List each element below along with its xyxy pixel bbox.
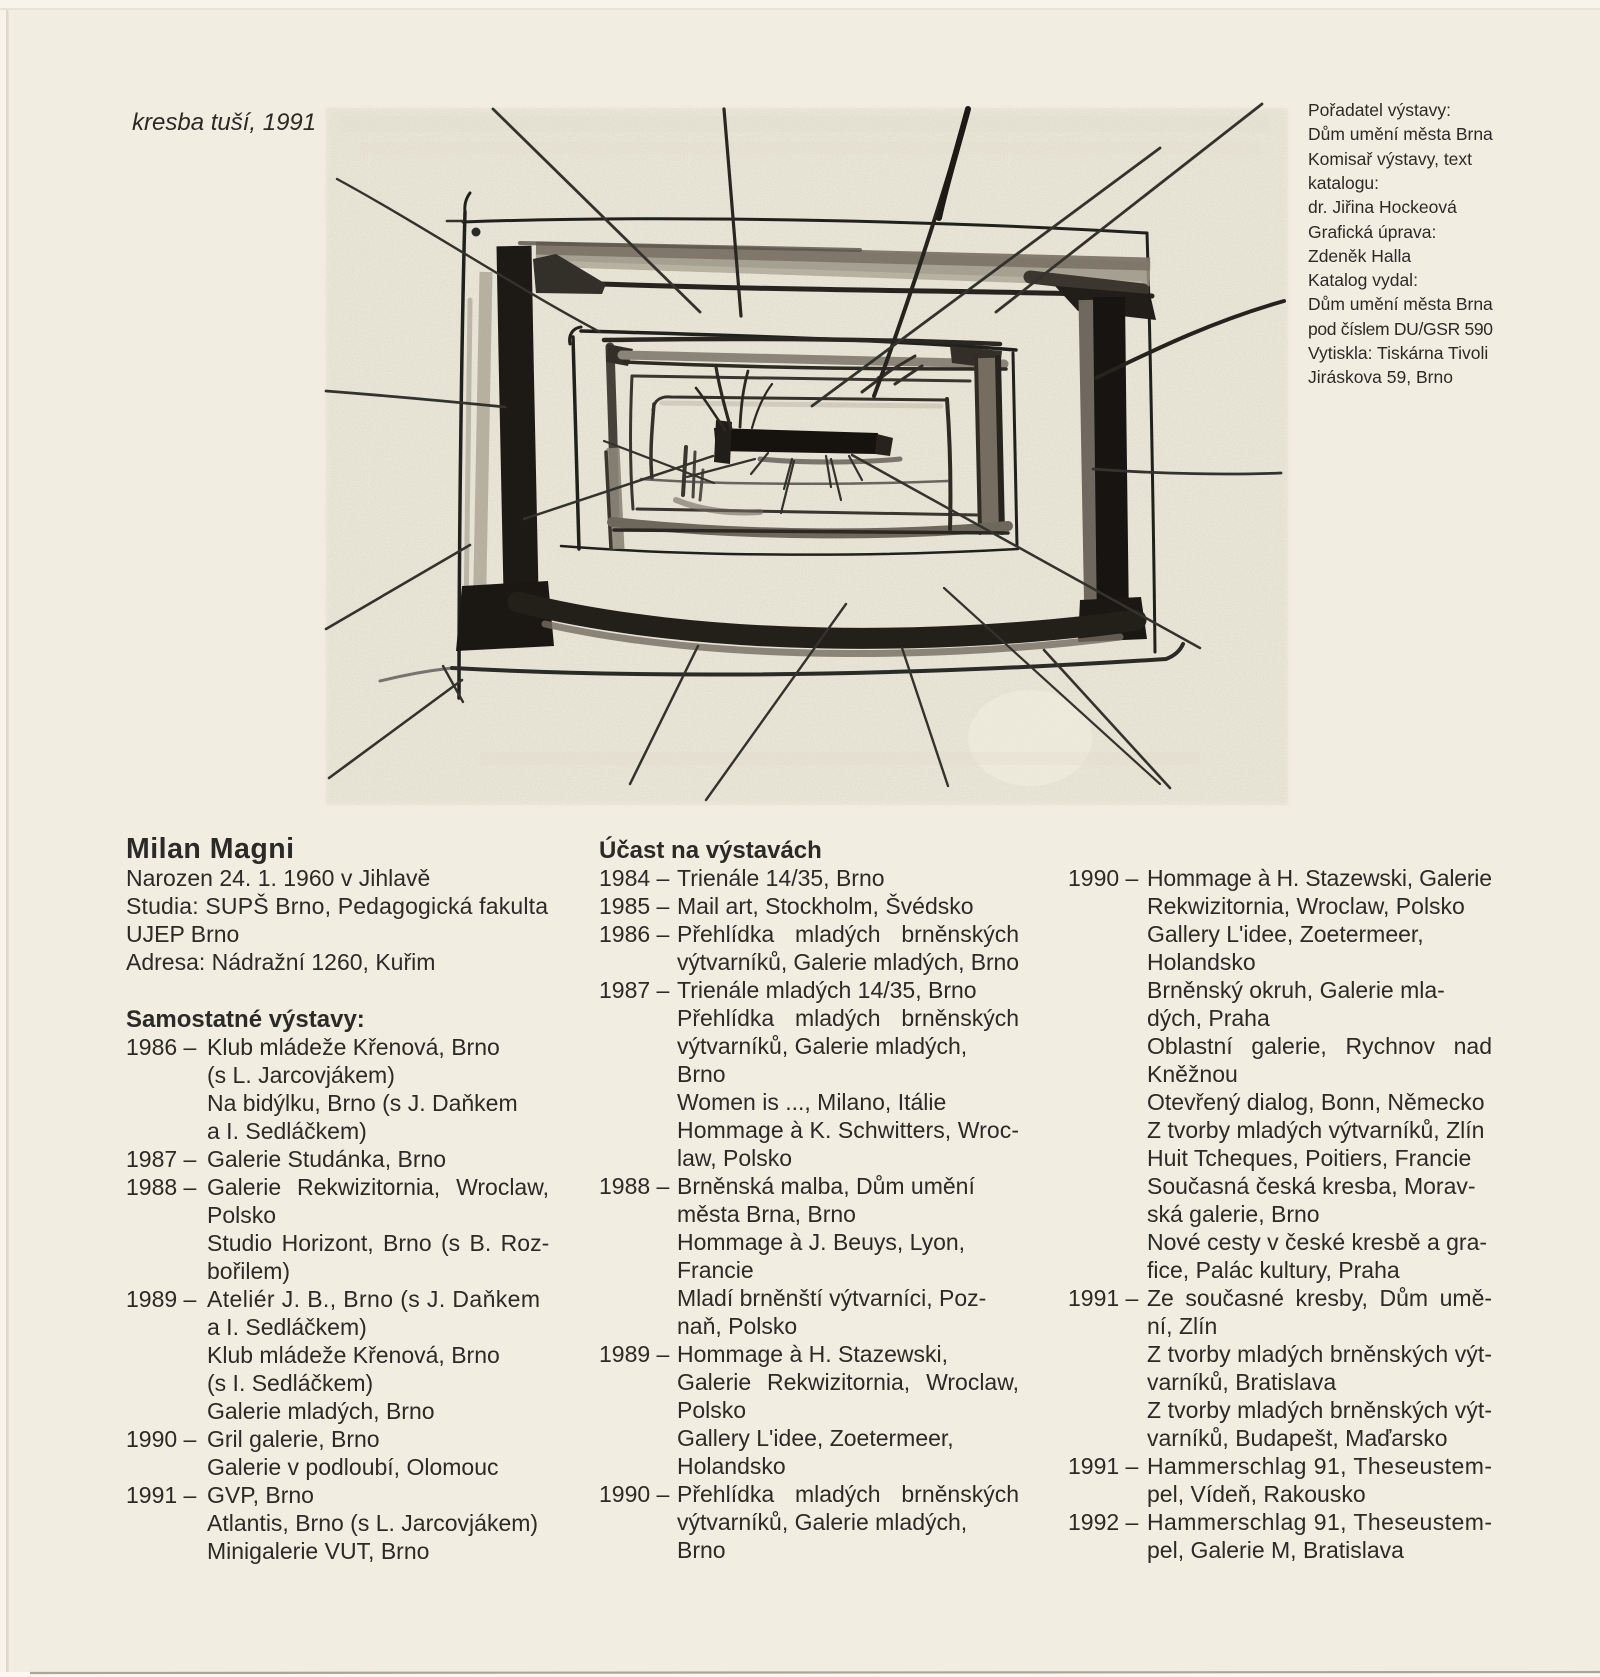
svg-text:Rekwizitornia, Wroclaw, Polsko: Rekwizitornia, Wroclaw, Polsko — [1147, 893, 1465, 919]
svg-text:Galerie Rekwizitornia, Wroclaw: Galerie Rekwizitornia, Wroclaw, — [207, 1174, 549, 1200]
svg-text:Galerie Rekwizitornia, Wroclaw: Galerie Rekwizitornia, Wroclaw, — [677, 1369, 1019, 1395]
svg-text:Současná česká kresba, Morav-: Současná česká kresba, Morav- — [1147, 1173, 1476, 1199]
svg-text:Gallery L'idee, Zoetermeer,: Gallery L'idee, Zoetermeer, — [1147, 921, 1424, 947]
svg-text:1989 –: 1989 – — [126, 1286, 197, 1312]
svg-text:Otevřený dialog, Bonn, Německo: Otevřený dialog, Bonn, Německo — [1147, 1089, 1485, 1115]
svg-text:Oblastní galerie, Rychnov nad: Oblastní galerie, Rychnov nad — [1147, 1033, 1492, 1059]
svg-text:Mail art, Stockholm, Švédsko: Mail art, Stockholm, Švédsko — [677, 892, 974, 919]
svg-text:Brno: Brno — [677, 1537, 726, 1563]
svg-text:(s I. Sedláčkem): (s I. Sedláčkem) — [207, 1370, 373, 1396]
svg-text:Vytiskla: Tiskárna Tivoli: Vytiskla: Tiskárna Tivoli — [1308, 343, 1488, 363]
svg-text:1990 –: 1990 – — [599, 1481, 670, 1507]
svg-text:1991 –: 1991 – — [1068, 1285, 1139, 1311]
svg-text:Dům umění města Brna: Dům umění města Brna — [1308, 294, 1493, 314]
svg-text:Na bidýlku, Brno (s J. Daňkem: Na bidýlku, Brno (s J. Daňkem — [207, 1090, 518, 1116]
svg-text:Z tvorby mladých brněnských vý: Z tvorby mladých brněnských výt- — [1147, 1341, 1492, 1367]
svg-text:Polsko: Polsko — [207, 1202, 276, 1228]
svg-text:Mladí brněnští výtvarníci, Poz: Mladí brněnští výtvarníci, Poz- — [677, 1285, 986, 1311]
svg-text:Adresa: Nádražní 1260, Kuřim: Adresa: Nádražní 1260, Kuřim — [126, 949, 435, 975]
svg-text:Hammerschlag 91, Theseustem-: Hammerschlag 91, Theseustem- — [1147, 1453, 1492, 1479]
svg-text:1986 –: 1986 – — [599, 921, 670, 947]
svg-text:varníků, Budapešt, Maďarsko: varníků, Budapešt, Maďarsko — [1147, 1425, 1448, 1451]
svg-text:Studia: SUPŠ Brno, Pedagogická: Studia: SUPŠ Brno, Pedagogická fakulta — [126, 892, 548, 919]
svg-text:Jiráskova 59, Brno: Jiráskova 59, Brno — [1308, 367, 1453, 387]
svg-text:Holandsko: Holandsko — [677, 1453, 786, 1479]
svg-text:1987 –: 1987 – — [126, 1146, 197, 1172]
svg-text:Gril galerie, Brno: Gril galerie, Brno — [207, 1426, 380, 1452]
svg-text:kresba tuší, 1991: kresba tuší, 1991 — [132, 109, 316, 136]
svg-text:1990 –: 1990 – — [1068, 865, 1139, 891]
svg-text:Hammerschlag 91, Theseustem-: Hammerschlag 91, Theseustem- — [1147, 1509, 1492, 1535]
svg-text:Přehlídka mladých brněnských: Přehlídka mladých brněnských — [677, 1005, 1019, 1031]
svg-text:varníků, Bratislava: varníků, Bratislava — [1147, 1369, 1336, 1395]
svg-text:GVP, Brno: GVP, Brno — [207, 1482, 314, 1508]
svg-text:Brno: Brno — [677, 1061, 726, 1087]
svg-text:výtvarníků, Galerie mladých, B: výtvarníků, Galerie mladých, Brno — [677, 949, 1019, 975]
svg-text:1988 –: 1988 – — [126, 1174, 197, 1200]
svg-text:Holandsko: Holandsko — [1147, 949, 1256, 975]
svg-text:výtvarníků, Galerie mladých,: výtvarníků, Galerie mladých, — [677, 1509, 967, 1535]
svg-text:Hommage à H. Stazewski, Galeri: Hommage à H. Stazewski, Galerie — [1147, 865, 1492, 891]
svg-text:Milan Magni: Milan Magni — [126, 833, 295, 865]
svg-text:Účast na výstavách: Účast na výstavách — [599, 836, 822, 864]
svg-text:pel, Vídeň, Rakousko: pel, Vídeň, Rakousko — [1147, 1481, 1366, 1507]
svg-text:Ze současné kresby, Dům umě-: Ze současné kresby, Dům umě- — [1147, 1285, 1492, 1311]
svg-text:Zdeněk Halla: Zdeněk Halla — [1308, 246, 1411, 266]
svg-text:Narozen 24. 1. 1960 v Jihlavě: Narozen 24. 1. 1960 v Jihlavě — [126, 865, 430, 891]
svg-text:Hommage à K. Schwitters, Wroc-: Hommage à K. Schwitters, Wroc- — [677, 1117, 1019, 1143]
svg-text:Huit Tcheques, Poitiers, Franc: Huit Tcheques, Poitiers, Francie — [1147, 1145, 1471, 1171]
svg-text:1992 –: 1992 – — [1068, 1509, 1139, 1535]
svg-text:1984 –: 1984 – — [599, 865, 670, 891]
svg-text:Komisař výstavy, text: Komisař výstavy, text — [1308, 149, 1472, 169]
svg-text:Hommage à J. Beuys, Lyon,: Hommage à J. Beuys, Lyon, — [677, 1229, 965, 1255]
svg-text:Klub mládeže Křenová, Brno: Klub mládeže Křenová, Brno — [207, 1342, 500, 1368]
svg-text:Brněnská malba, Dům umění: Brněnská malba, Dům umění — [677, 1173, 975, 1199]
svg-text:Galerie Studánka, Brno: Galerie Studánka, Brno — [207, 1146, 446, 1172]
svg-text:naň, Polsko: naň, Polsko — [677, 1313, 797, 1339]
svg-text:Polsko: Polsko — [677, 1397, 746, 1423]
svg-text:Brněnský okruh, Galerie mla-: Brněnský okruh, Galerie mla- — [1147, 977, 1445, 1003]
svg-text:law, Polsko: law, Polsko — [677, 1145, 792, 1171]
svg-text:Přehlídka mladých brněnských: Přehlídka mladých brněnských — [677, 921, 1019, 947]
svg-text:Women is ..., Milano, Itálie: Women is ..., Milano, Itálie — [677, 1089, 946, 1115]
svg-text:Studio Horizont, Brno (s B. Ro: Studio Horizont, Brno (s B. Roz- — [207, 1230, 549, 1256]
svg-text:Galerie mladých, Brno: Galerie mladých, Brno — [207, 1398, 435, 1424]
svg-text:a I. Sedláčkem): a I. Sedláčkem) — [207, 1118, 367, 1144]
svg-text:Přehlídka mladých brněnských: Přehlídka mladých brněnských — [677, 1481, 1019, 1507]
svg-text:1986 –: 1986 – — [126, 1034, 197, 1060]
svg-text:Minigalerie VUT, Brno: Minigalerie VUT, Brno — [207, 1538, 429, 1564]
svg-text:1989 –: 1989 – — [599, 1341, 670, 1367]
svg-text:Trienále 14/35, Brno: Trienále 14/35, Brno — [677, 865, 885, 891]
svg-text:1985 –: 1985 – — [599, 893, 670, 919]
svg-text:1988 –: 1988 – — [599, 1173, 670, 1199]
svg-text:Nové cesty v české kresbě a gr: Nové cesty v české kresbě a gra- — [1147, 1229, 1487, 1255]
svg-text:dr. Jiřina Hockeová: dr. Jiřina Hockeová — [1308, 197, 1457, 217]
svg-text:výtvarníků, Galerie mladých,: výtvarníků, Galerie mladých, — [677, 1033, 967, 1059]
svg-text:(s L. Jarcovjákem): (s L. Jarcovjákem) — [207, 1062, 395, 1088]
svg-text:Kněžnou: Kněžnou — [1147, 1061, 1238, 1087]
svg-text:Klub mládeže Křenová, Brno: Klub mládeže Křenová, Brno — [207, 1034, 500, 1060]
svg-text:1990 –: 1990 – — [126, 1426, 197, 1452]
svg-text:1991 –: 1991 – — [126, 1482, 197, 1508]
svg-text:ská galerie, Brno: ská galerie, Brno — [1147, 1201, 1320, 1227]
svg-text:Trienále mladých 14/35, Brno: Trienále mladých 14/35, Brno — [677, 977, 977, 1003]
svg-text:a I. Sedláčkem): a I. Sedláčkem) — [207, 1314, 367, 1340]
svg-text:Grafická úprava:: Grafická úprava: — [1308, 222, 1436, 242]
svg-text:Pořadatel výstavy:: Pořadatel výstavy: — [1308, 100, 1451, 120]
svg-text:pel, Galerie M, Bratislava: pel, Galerie M, Bratislava — [1147, 1537, 1404, 1563]
svg-text:dých, Praha: dých, Praha — [1147, 1005, 1270, 1031]
svg-text:Dům umění města Brna: Dům umění města Brna — [1308, 124, 1493, 144]
svg-text:bořilem): bořilem) — [207, 1258, 290, 1284]
svg-text:Gallery L'idee, Zoetermeer,: Gallery L'idee, Zoetermeer, — [677, 1425, 954, 1451]
svg-text:Atlantis, Brno (s L. Jarcovják: Atlantis, Brno (s L. Jarcovjákem) — [207, 1510, 538, 1536]
svg-text:Z tvorby mladých brněnských vý: Z tvorby mladých brněnských výt- — [1147, 1397, 1492, 1423]
svg-text:Galerie v podloubí, Olomouc: Galerie v podloubí, Olomouc — [207, 1454, 499, 1480]
svg-text:Samostatné výstavy:: Samostatné výstavy: — [126, 1006, 365, 1033]
svg-text:katalogu:: katalogu: — [1308, 173, 1379, 193]
svg-text:ní, Zlín: ní, Zlín — [1147, 1313, 1217, 1339]
svg-text:1991 –: 1991 – — [1068, 1453, 1139, 1479]
svg-text:města Brna, Brno: města Brna, Brno — [677, 1201, 856, 1227]
svg-text:pod číslem DU/GSR 590: pod číslem DU/GSR 590 — [1308, 319, 1493, 339]
svg-text:Hommage à H. Stazewski,: Hommage à H. Stazewski, — [677, 1341, 948, 1367]
svg-text:Ateliér J. B., Brno (s J. Daňk: Ateliér J. B., Brno (s J. Daňkem — [207, 1286, 540, 1312]
svg-text:fice, Palác kultury, Praha: fice, Palác kultury, Praha — [1147, 1257, 1400, 1283]
svg-text:Katalog vydal:: Katalog vydal: — [1308, 270, 1418, 290]
svg-text:Francie: Francie — [677, 1257, 754, 1283]
svg-text:UJEP Brno: UJEP Brno — [126, 921, 239, 947]
svg-text:1987 –: 1987 – — [599, 977, 670, 1003]
svg-text:Z tvorby mladých výtvarníků, Z: Z tvorby mladých výtvarníků, Zlín — [1147, 1117, 1484, 1143]
